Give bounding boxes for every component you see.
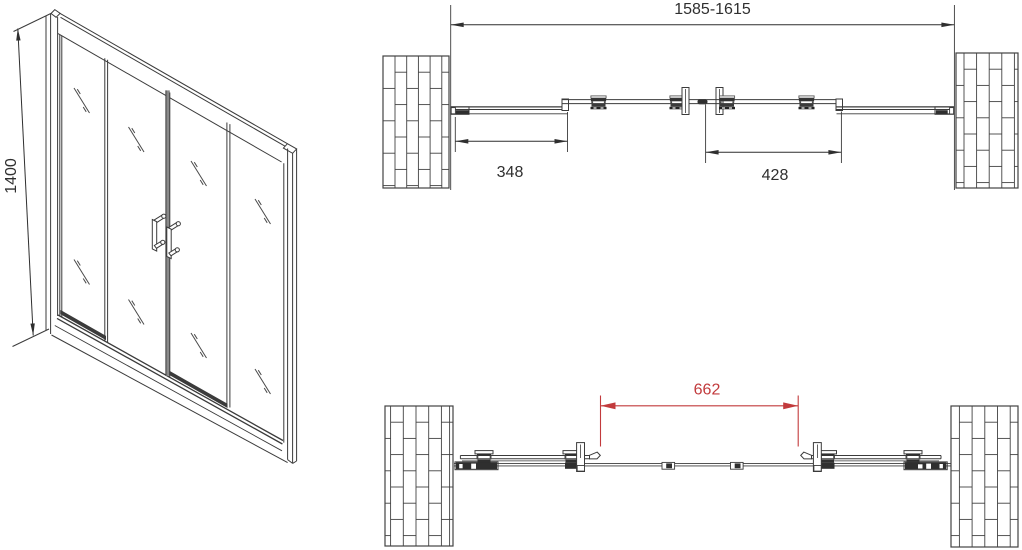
svg-text:1400: 1400 xyxy=(3,158,20,194)
svg-text:1585-1615: 1585-1615 xyxy=(674,1,751,18)
svg-text:428: 428 xyxy=(762,167,789,184)
svg-text:348: 348 xyxy=(497,164,524,181)
svg-text:662: 662 xyxy=(694,382,721,399)
